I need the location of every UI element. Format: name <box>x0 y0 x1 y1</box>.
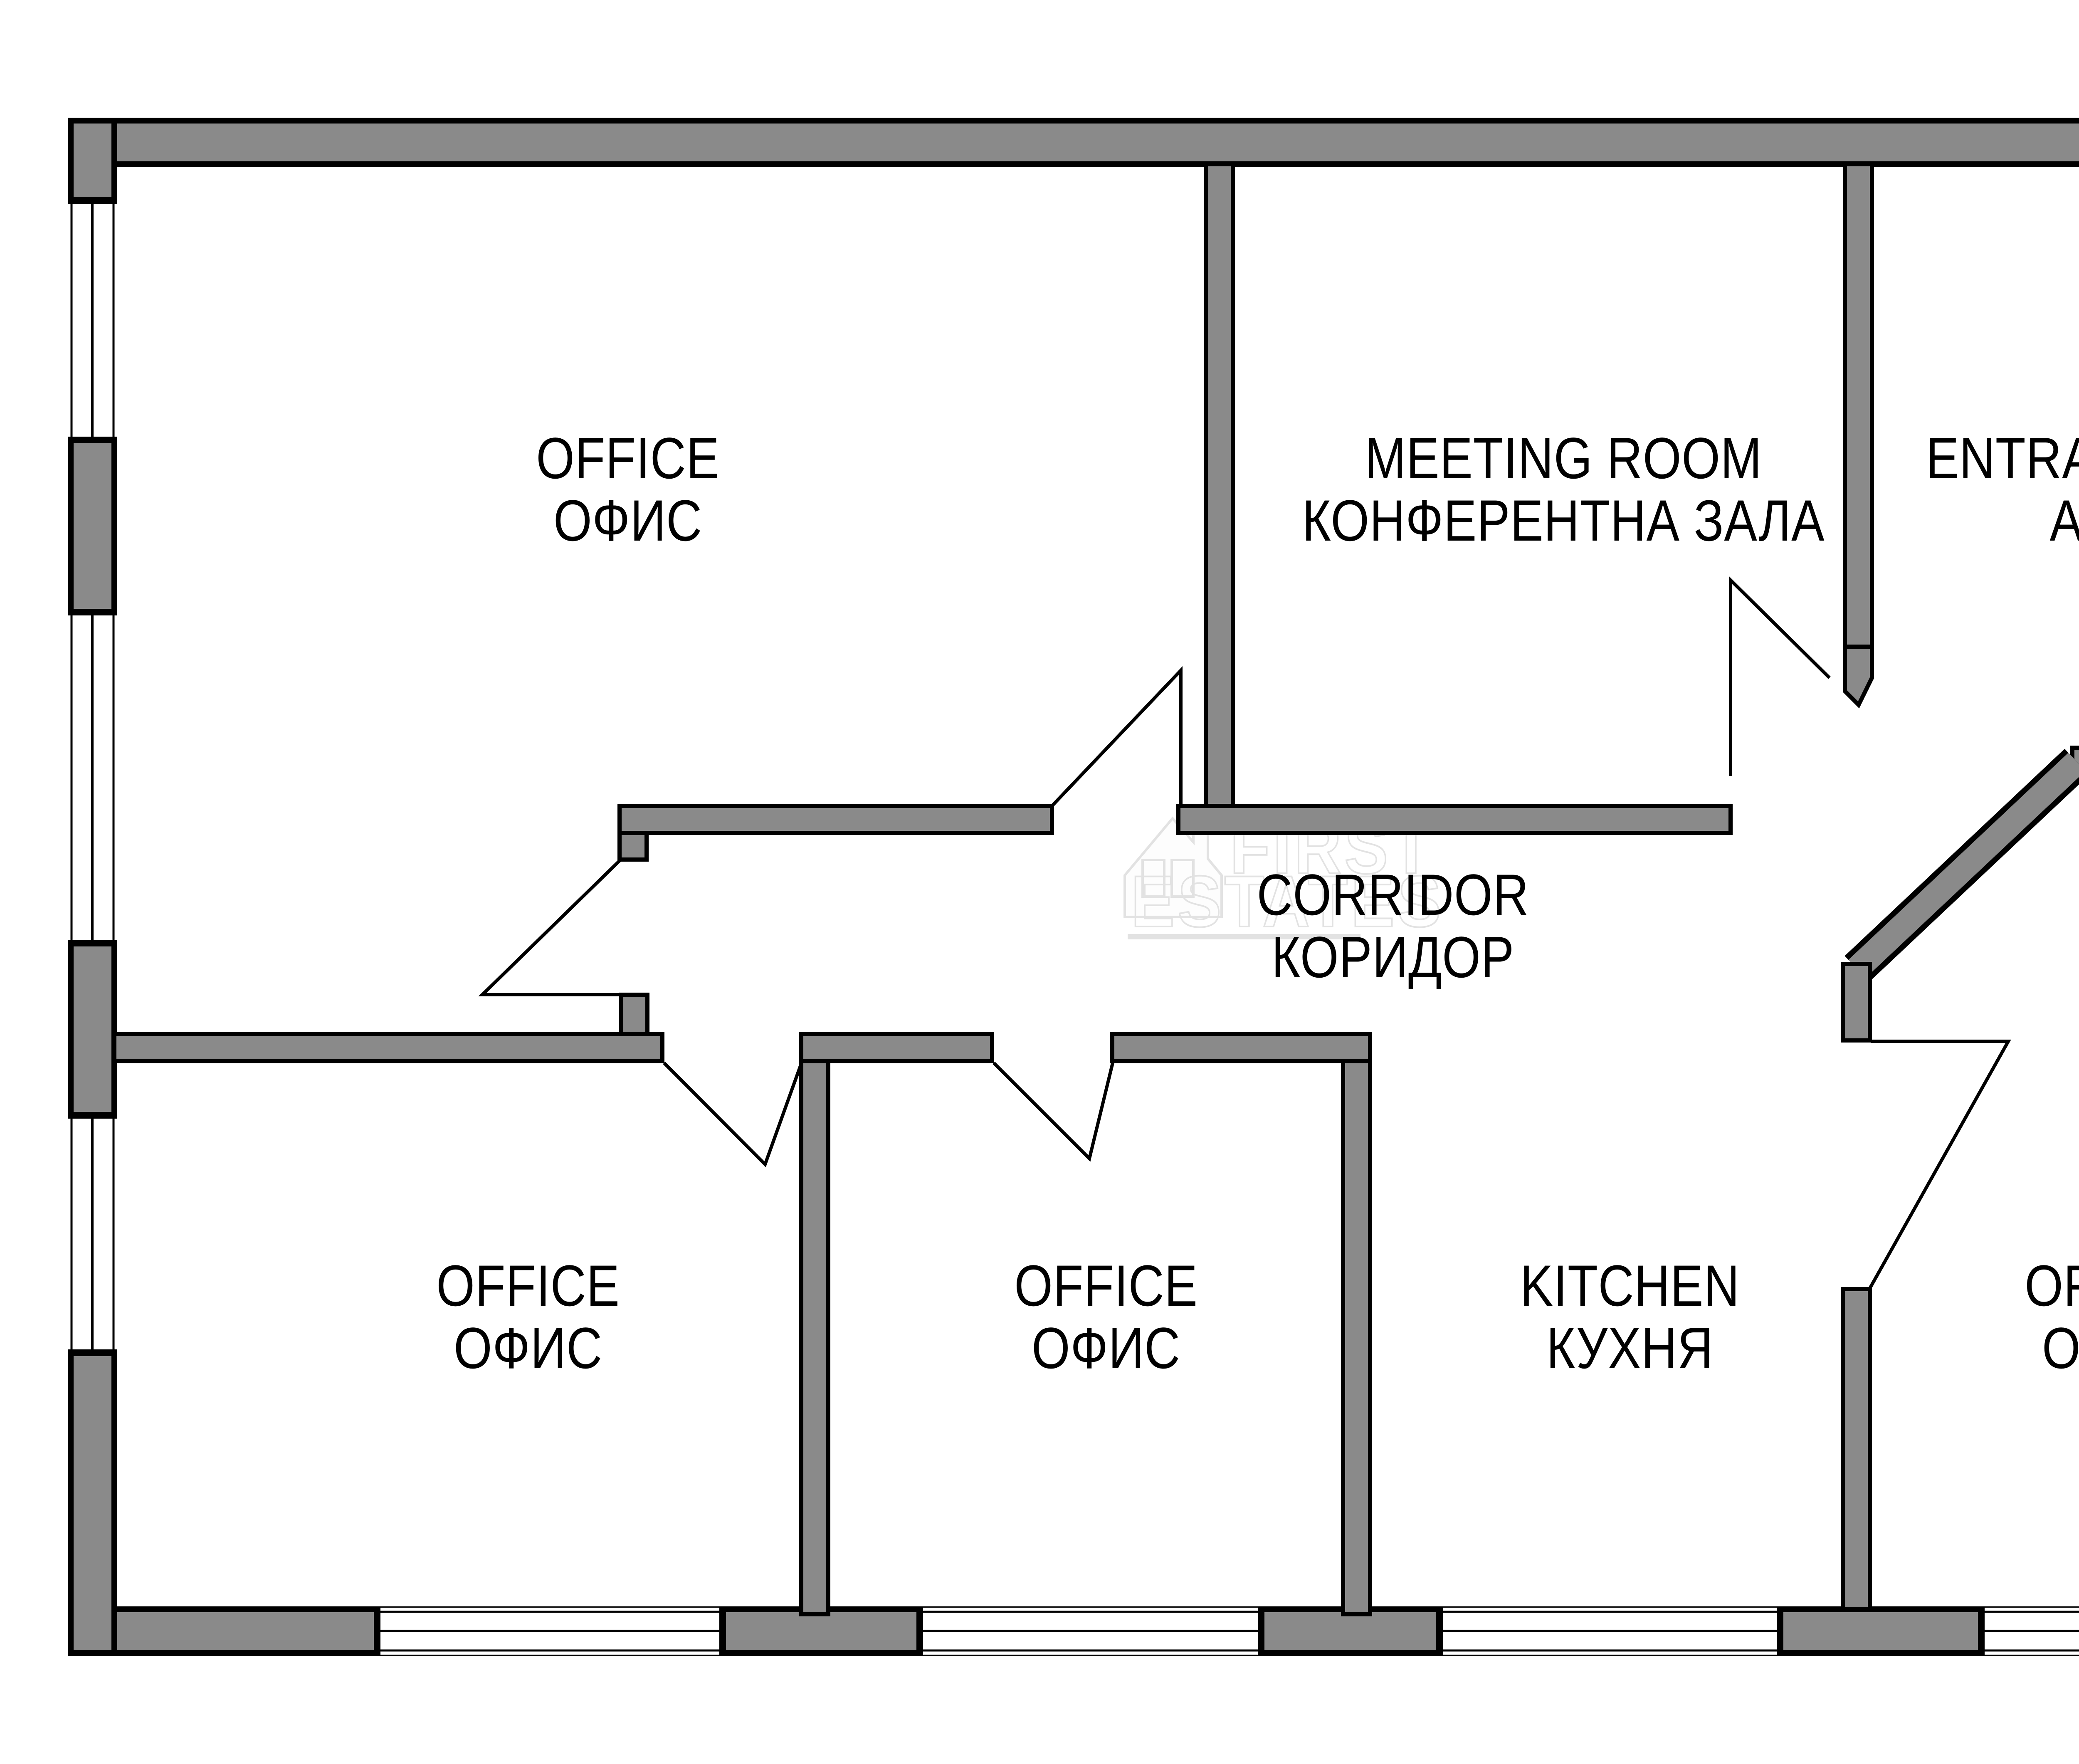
label-office-bottom-left-en: OFFICE <box>436 1253 620 1318</box>
wall-office-bl-top <box>114 1034 662 1061</box>
door-office-bottom-mid <box>994 1061 1113 1159</box>
window <box>1436 1608 1783 1655</box>
door-jamb <box>621 995 647 1035</box>
window <box>68 1112 117 1356</box>
label-office-bottom-left-bg: ОФИС <box>454 1315 602 1381</box>
door-jamb <box>620 833 647 860</box>
windows-left <box>68 197 117 1356</box>
door-meeting-room <box>1731 580 1830 776</box>
wall-office-bl-bm <box>801 1061 828 1614</box>
label-office-top-left-bg: ОФИС <box>553 488 702 553</box>
room-labels: OFFICE ОФИС MEETING ROOM КОНФЕРЕНТНА ЗАЛ… <box>436 425 2079 1381</box>
label-office-bottom-right-en: OFFICE <box>2025 1253 2079 1318</box>
door-office-top-left-2 <box>1053 670 1181 805</box>
label-office-bottom-right-bg: ОФИС <box>2042 1315 2079 1381</box>
label-corridor-bg: КОРИДОР <box>1272 924 1514 990</box>
label-office-top-left-en: OFFICE <box>536 425 719 491</box>
label-kitchen-en: KITCHEN <box>1520 1253 1740 1318</box>
label-corridor-en: CORRIDOR <box>1257 862 1529 927</box>
wall-meeting-bottom <box>1178 806 1731 833</box>
exterior-walls <box>71 121 2079 1653</box>
wall-meeting-entrance-foot <box>1845 647 1872 705</box>
label-meeting-room-en: MEETING ROOM <box>1365 425 1762 491</box>
door-office-top-left <box>482 860 624 995</box>
window <box>68 197 117 443</box>
wall-corridor-top-west <box>620 806 1052 833</box>
label-meeting-room-bg: КОНФЕРЕНТНА ЗАЛА <box>1302 488 1825 553</box>
wall-corridor-diagonal <box>1857 762 2077 969</box>
window <box>374 1608 726 1655</box>
window <box>916 1608 1264 1655</box>
wall-corridor-bottom-mid <box>801 1034 992 1061</box>
window <box>68 609 117 946</box>
label-office-bottom-mid-bg: ОФИС <box>1032 1315 1180 1381</box>
door-kitchen-office <box>1870 1041 2008 1288</box>
label-office-bottom-mid-en: OFFICE <box>1014 1253 1198 1318</box>
label-entrance-hall-bg: АНТРЕ <box>2050 488 2079 553</box>
label-entrance-hall-en: ENTRANCE HALL <box>1926 425 2079 491</box>
wall-office-meeting <box>1206 164 1233 807</box>
label-kitchen-bg: КУХНЯ <box>1546 1315 1714 1381</box>
wall-corridor-se-stub <box>1843 964 1870 1040</box>
window <box>1978 1608 2079 1655</box>
wall-meeting-entrance <box>1845 164 1872 655</box>
wall-top <box>71 121 2079 164</box>
wall-kitchen-office-br <box>1843 1289 1870 1609</box>
floor-plan: FIRST ESTATES <box>0 0 2079 1764</box>
wall-office-bm-kitchen <box>1343 1061 1370 1614</box>
door-office-bottom-left <box>664 1061 802 1164</box>
interior-walls <box>114 164 2079 1614</box>
wall-corridor-bottom-east <box>1112 1034 1370 1061</box>
